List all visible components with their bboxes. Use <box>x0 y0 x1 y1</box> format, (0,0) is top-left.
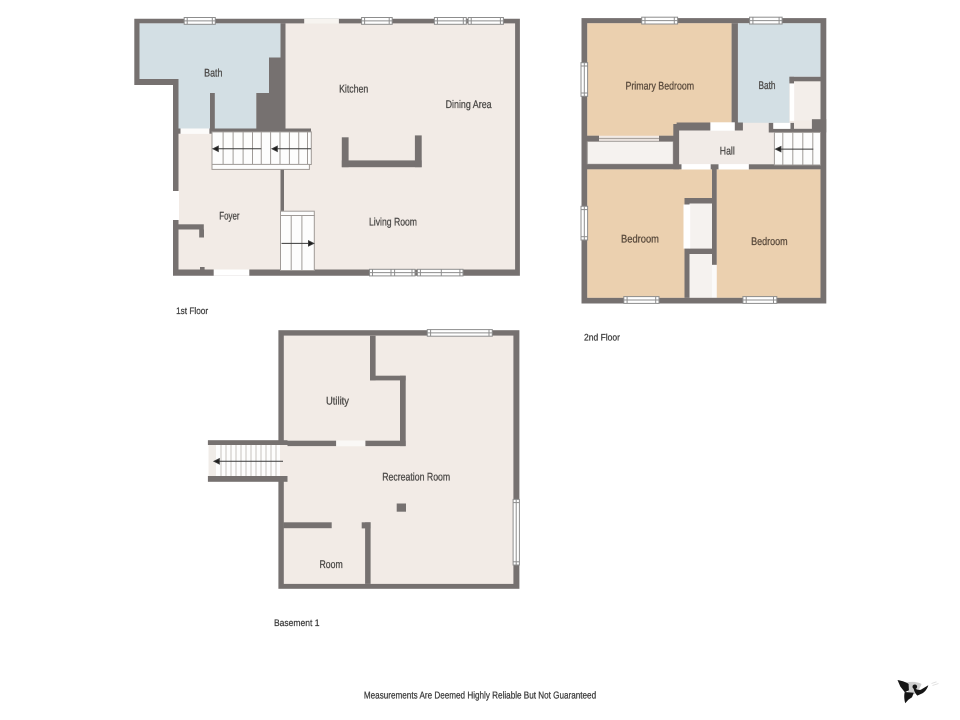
svg-text:Bath: Bath <box>759 80 776 92</box>
svg-text:Dining Area: Dining Area <box>446 99 493 111</box>
svg-text:Utility: Utility <box>326 396 349 408</box>
svg-text:Foyer: Foyer <box>219 210 239 222</box>
svg-text:Measurements Are Deemed Highly: Measurements Are Deemed Highly Reliable … <box>364 691 596 702</box>
svg-text:Primary Bedroom: Primary Bedroom <box>625 80 694 92</box>
svg-text:Kitchen: Kitchen <box>339 84 368 96</box>
svg-text:Room: Room <box>319 559 342 571</box>
svg-text:1st Floor: 1st Floor <box>176 306 208 317</box>
svg-text:Bedroom: Bedroom <box>621 233 659 245</box>
svg-text:Bath: Bath <box>204 67 222 79</box>
svg-text:Hall: Hall <box>720 145 735 157</box>
svg-text:2nd Floor: 2nd Floor <box>584 333 620 344</box>
svg-text:Basement 1: Basement 1 <box>274 618 320 629</box>
svg-text:Recreation Room: Recreation Room <box>382 471 450 483</box>
svg-text:Living Room: Living Room <box>369 217 417 229</box>
svg-text:Bedroom: Bedroom <box>751 236 788 248</box>
